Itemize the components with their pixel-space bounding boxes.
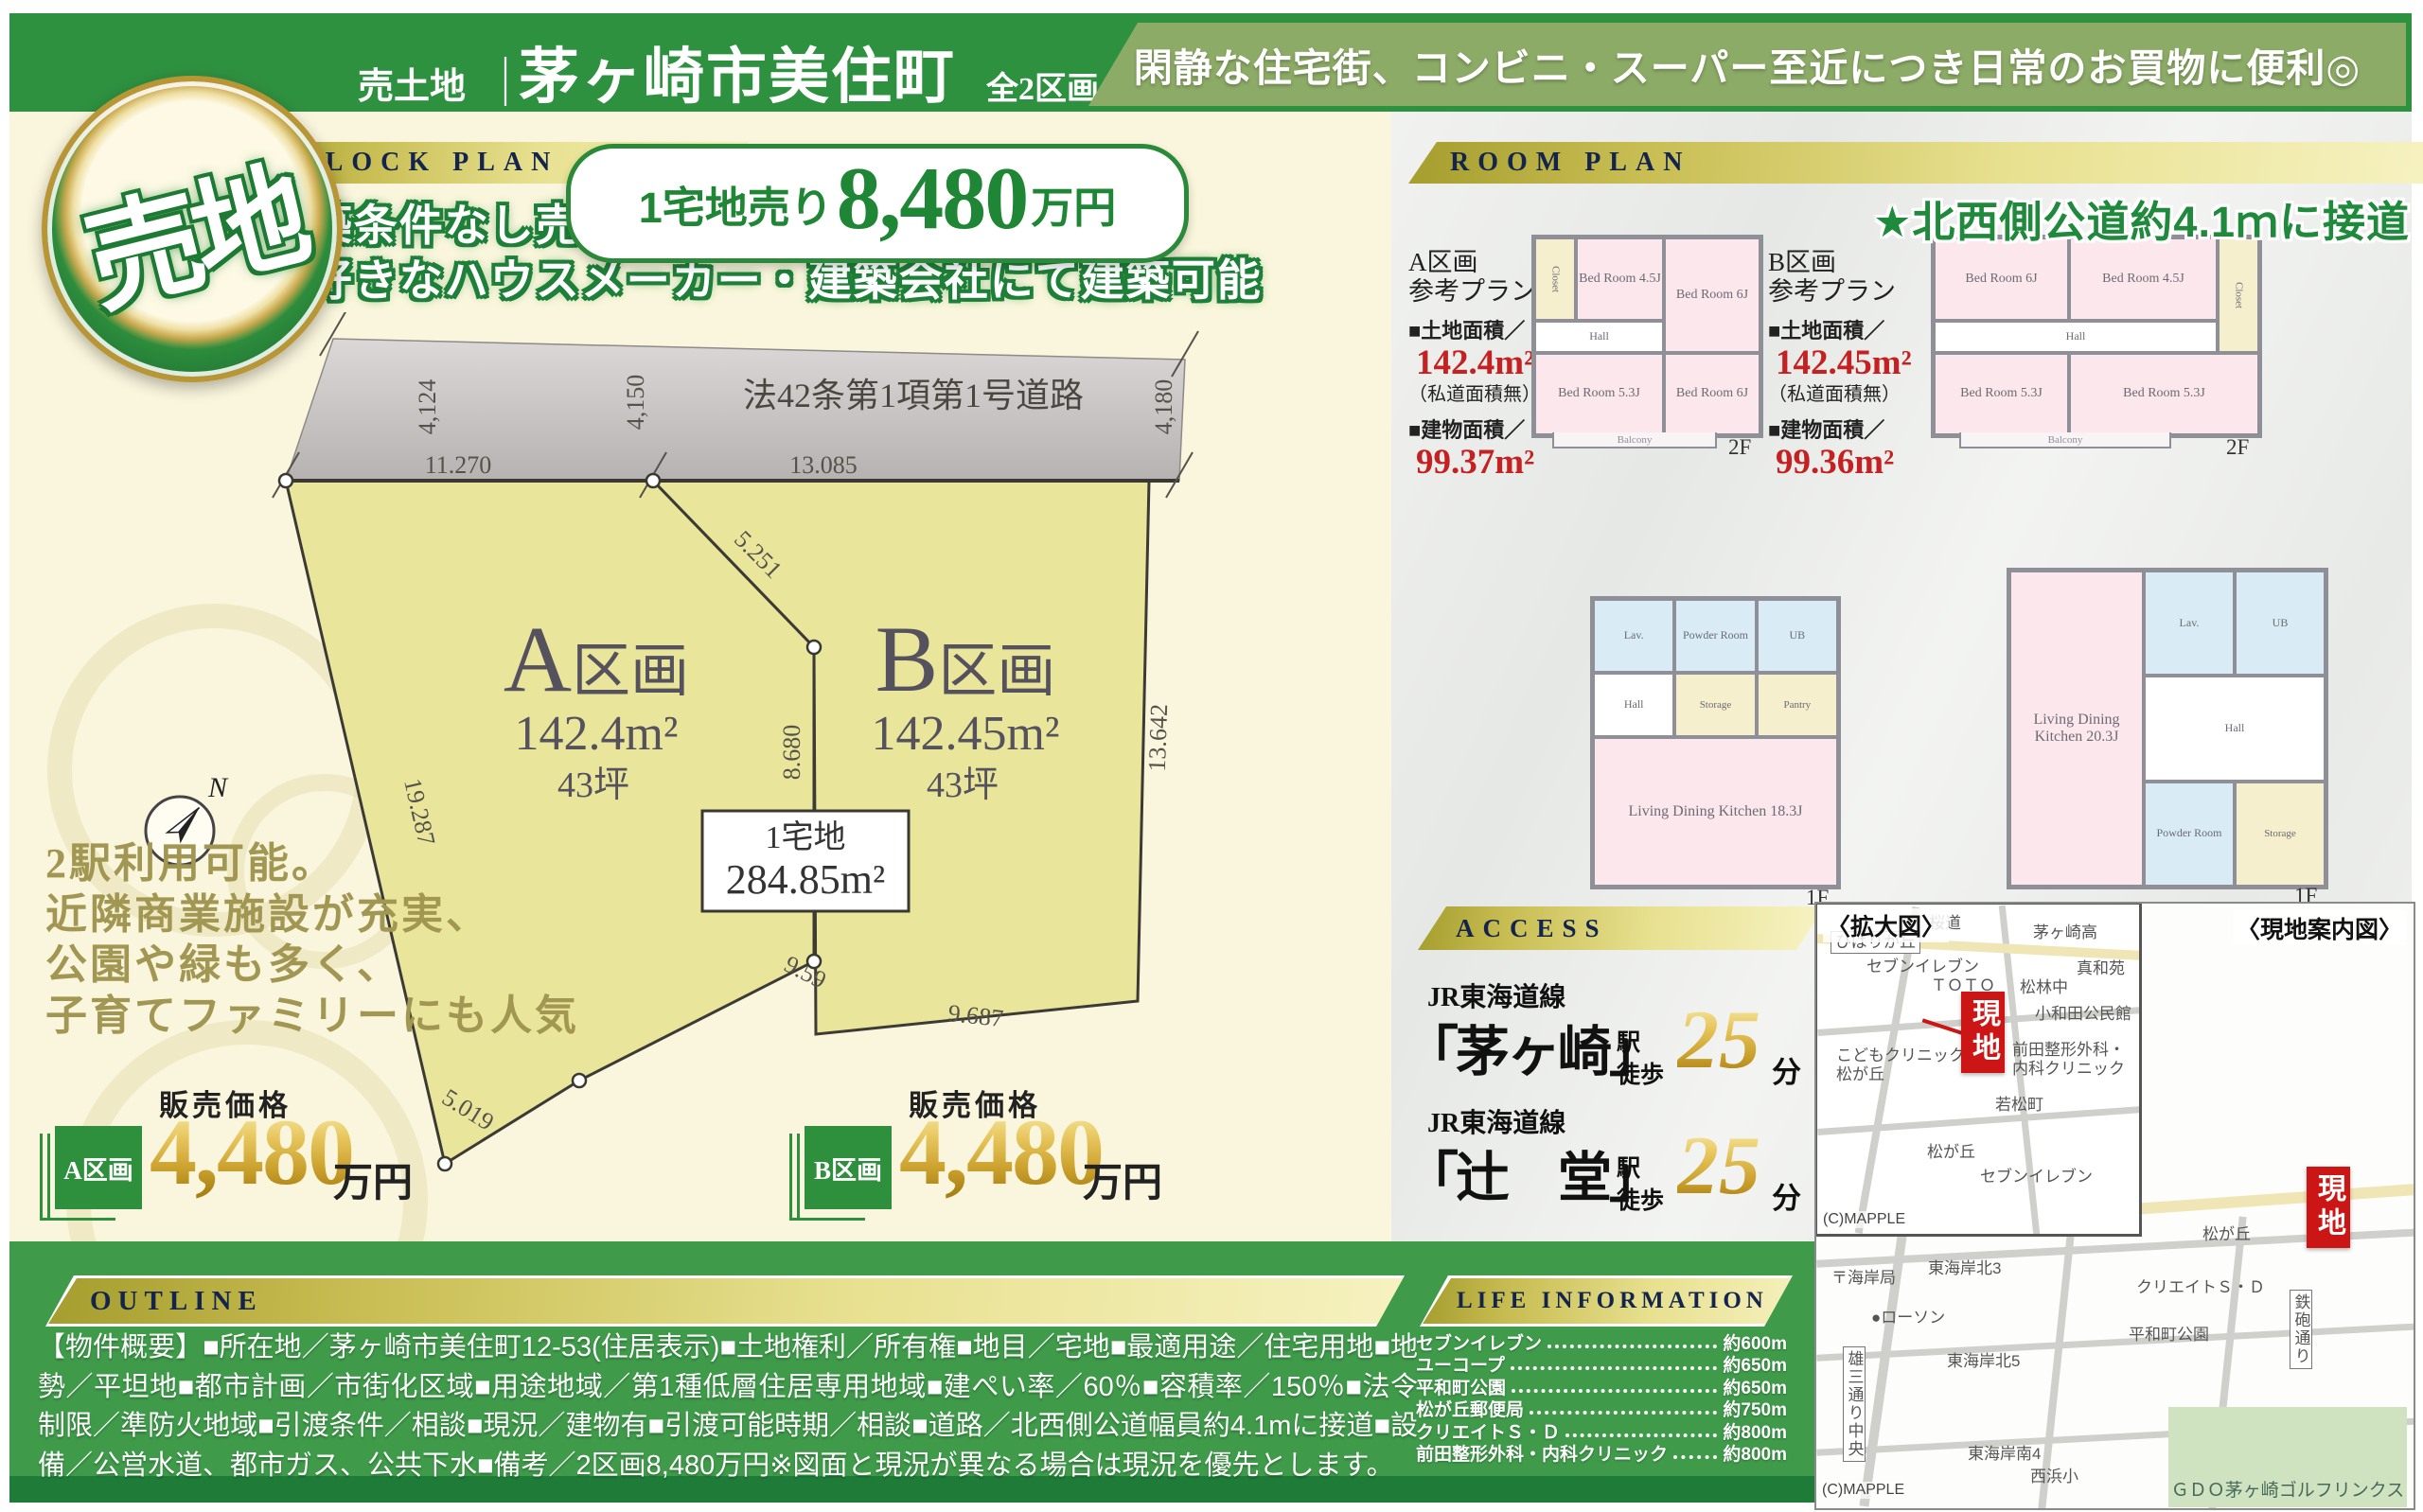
route-2-minutes-unit: 分 — [1772, 1174, 1801, 1217]
plan-b-2f-label: 2F — [2226, 435, 2249, 460]
outline-section-bar: OUTLINE — [45, 1275, 1405, 1327]
facility-name: 前田整形外科・内科クリニック — [1416, 1440, 1668, 1466]
dot-leader — [1565, 1433, 1717, 1437]
map-label: 東海岸北5 — [1947, 1352, 2020, 1371]
plan-a-building-label: ■建物面積／ — [1408, 413, 1550, 444]
plan-a-info: A区画 参考プラン ■土地面積／ 142.4m² （私道面積無） ■建物面積／ … — [1408, 248, 1550, 482]
room: Bed Room 5.3J — [2071, 355, 2257, 434]
price-unit: 万円 — [1031, 173, 1116, 235]
room: UB — [2237, 572, 2324, 674]
plan-a-land-note: （私道面積無） — [1408, 383, 1550, 406]
plan-b-land-note: （私道面積無） — [1768, 383, 1910, 406]
inset-site-marker: 現地 — [1961, 992, 2005, 1073]
route-1-minutes: 25 — [1677, 999, 1760, 1082]
guide-map-credit: (C)MAPPLE — [1822, 1482, 1904, 1499]
plan-b-info: B区画 参考プラン ■土地面積／ 142.45m² （私道面積無） ■建物面積／… — [1768, 248, 1910, 482]
plan-a-land-label: ■土地面積／ — [1408, 314, 1550, 344]
lot-b-area-label: 142.45m² — [871, 707, 1059, 761]
map-label: 前田整形外科・ 内科クリニック — [2012, 1041, 2125, 1078]
room: Closet — [2220, 239, 2257, 351]
room-plan-section-label: ROOM PLAN — [1408, 142, 2423, 184]
catch-copy-line: 公園や緑も多く、 — [45, 940, 579, 991]
plan-b-land-label: ■土地面積／ — [1768, 314, 1910, 344]
total-label: 1宅地 — [766, 819, 846, 855]
room: Lav. — [1595, 601, 1672, 671]
room: Lav. — [2146, 572, 2233, 674]
map-label: 雄三通り中央 — [1843, 1346, 1866, 1462]
catch-copy-line: 子育てファミリーにも人気 — [45, 991, 579, 1042]
map-label: 西浜小 — [2030, 1468, 2078, 1486]
header-banner: 閑静な住宅街、コンビニ・スーパー至近につき日常のお買物に便利◎ — [1088, 23, 2406, 106]
room: Powder Room — [2146, 783, 2233, 885]
badge-label: 売地 — [67, 122, 317, 337]
access-section-label: ACCESS — [1418, 906, 1825, 950]
route-1-station-suffix: 駅 — [1617, 1024, 1640, 1058]
lot-count: 全2区画 — [986, 62, 1099, 109]
map-label: セブンイレブン — [1980, 1168, 2093, 1187]
plan-a-1f-floorplan: Lav. Powder Room UB Hall Storage Pantry … — [1590, 596, 1841, 889]
map-label: セブンイレブン — [1866, 958, 1979, 976]
room: Bed Room 6J — [1936, 239, 2067, 319]
route-1-walk-label: 徒歩 — [1617, 1056, 1664, 1090]
map-label: 小和田公民館 — [2035, 1005, 2131, 1024]
map-label: 松が丘 — [2202, 1225, 2251, 1244]
plan-a-balcony: Balcony — [1552, 432, 1717, 448]
plan-a-subtitle: 参考プラン — [1408, 277, 1550, 307]
price-value: 8,480 — [837, 148, 1028, 250]
facility-distance: 約800m — [1723, 1440, 1787, 1466]
plan-b-name: B区画 — [1768, 248, 1910, 277]
property-category: 売土地 — [358, 57, 466, 109]
dim-divider: 8.680 — [778, 725, 805, 781]
road-name: 法42条第1項第1号道路 — [743, 377, 1084, 414]
map-label: 平和町公園 — [2129, 1326, 2209, 1345]
price-prefix: 1宅地売り — [639, 173, 833, 235]
lot-a-area-label: 142.4m² — [514, 707, 678, 761]
dim-front-b: 13.085 — [789, 451, 858, 479]
road-access-note: ★北西側公道約4.1ｍに接道 — [1873, 187, 2410, 249]
for-sale-badge: 売地 — [42, 76, 343, 382]
room: Hall — [1936, 323, 2216, 351]
room: Powder Room — [1676, 601, 1754, 671]
outline-section-label: OUTLINE — [48, 1278, 1443, 1324]
map-label: 茅ヶ崎高 — [2033, 923, 2097, 942]
room: Pantry — [1759, 675, 1836, 735]
plan-a-2f-floorplan: Closet Bed Room 4.5J Bed Room 6J Hall Be… — [1531, 235, 1763, 438]
route-2-minutes: 25 — [1677, 1125, 1760, 1208]
guide-map-title: 〈現地案内図〉 — [2233, 911, 2406, 945]
header-banner-text: 閑静な住宅街、コンビニ・スーパー至近につき日常のお買物に便利◎ — [1134, 36, 2361, 93]
map-label: 真和苑 — [2077, 959, 2125, 978]
plan-a-name: A区画 — [1408, 248, 1550, 277]
route-2-walk-label: 徒歩 — [1617, 1182, 1664, 1216]
route-1-minutes-unit: 分 — [1772, 1048, 1801, 1091]
room: Closet — [1536, 239, 1574, 319]
room: Living Dining Kitchen 18.3J — [1595, 739, 1836, 885]
flyer-page: 売地 売土地 ｜ 茅ヶ崎市美住町 全2区画 閑静な住宅街、コンビニ・スーパー至近… — [0, 0, 2423, 1512]
room: Bed Room 6J — [1666, 239, 1759, 351]
plan-b-2f-floorplan: Bed Room 6J Bed Room 4.5J Closet Hall Be… — [1931, 235, 2262, 438]
plan-b-balcony: Balcony — [1959, 432, 2171, 448]
room: UB — [1759, 601, 1836, 671]
catch-copy: 2駅利用可能。近隣商業施設が充実、公園や緑も多く、子育てファミリーにも人気 — [45, 838, 579, 1042]
life-information-list: セブンイレブン 約600m ユーコープ 約650m 平和町公園 約650m 松が… — [1416, 1332, 1787, 1466]
room: Hall — [1595, 675, 1672, 735]
map-label: 東海岸南4 — [1968, 1445, 2041, 1464]
lot-a-tsubo: 43坪 — [557, 765, 629, 805]
room: Bed Room 5.3J — [1936, 355, 2067, 434]
dim-b-right: 13.642 — [1143, 703, 1173, 771]
lot-a-price-tag: A区画 — [55, 1126, 142, 1209]
total-area: 284.85m² — [726, 856, 885, 903]
room: Living Dining Kitchen 20.3J — [2011, 572, 2142, 885]
room: Storage — [2237, 783, 2324, 885]
plan-b-building-area: 99.36m² — [1776, 444, 1910, 483]
dim-road-right: 4,180 — [1150, 379, 1177, 435]
dot-leader — [1512, 1389, 1717, 1393]
site-plan-drawing: 4,124 4,150 4,180 11.270 13.085 5.251 8.… — [133, 312, 1230, 1192]
catch-copy-line: 近隣商業施設が充実、 — [45, 889, 579, 941]
map-label: ●ローソン — [1871, 1309, 1945, 1327]
life-information-section-label: LIFE INFORMATION — [1423, 1278, 1824, 1324]
dim-road-mid: 4,150 — [622, 375, 649, 431]
compass-north-label: N — [207, 772, 229, 803]
property-outline-text: 【物件概要】■所在地／茅ヶ崎市美住町12-53(住居表示)■土地権利／所有権■地… — [38, 1328, 1418, 1486]
map-label: 松が丘 — [1927, 1143, 1975, 1162]
dim-road-left: 4,124 — [414, 379, 441, 435]
room: Hall — [2146, 677, 2324, 779]
plan-a-2f-label: 2F — [1728, 435, 1751, 460]
map-label: クリエイトＳ・Ｄ — [2136, 1278, 2265, 1297]
inset-map-title: 〈拡大図〉 — [1823, 908, 1949, 942]
map-label: 〒海岸局 — [1831, 1269, 1896, 1288]
golf-course-park: ＧＤＯ茅ヶ崎ゴルフリンクス — [2168, 1407, 2407, 1507]
inset-map-credit: (C)MAPPLE — [1823, 1211, 1905, 1228]
dim-b-bottom: 9.687 — [946, 999, 1004, 1032]
dot-leader — [1530, 1411, 1717, 1415]
life-information-section-bar: LIFE INFORMATION — [1420, 1275, 1793, 1327]
map-label: 鉄砲通り — [2290, 1290, 2312, 1369]
guide-site-marker: 現地 — [2307, 1167, 2350, 1248]
guide-map: ＧＤＯ茅ヶ崎ゴルフリンクス 〈現地案内図〉 現地 (C)MAPPLE 茅ヶ崎駅〒… — [1814, 902, 2415, 1510]
dot-leader — [1673, 1455, 1717, 1459]
dim-front-a: 11.270 — [425, 451, 492, 479]
dot-leader — [1511, 1366, 1718, 1370]
map-label: 若松町 — [1995, 1096, 2043, 1115]
plan-b-building-label: ■建物面積／ — [1768, 413, 1910, 444]
room: Bed Room 6J — [1666, 355, 1759, 434]
page-title: 茅ヶ崎市美住町 — [519, 28, 956, 115]
total-price-bubble: 1宅地売り 8,480 万円 — [566, 144, 1189, 263]
lot-b-tsubo: 43坪 — [927, 765, 999, 805]
dot-leader — [1548, 1345, 1717, 1348]
plan-b-land-area: 142.45m² — [1776, 344, 1910, 383]
catch-copy-line: 2駅利用可能。 — [45, 838, 579, 889]
total-area-box: 1宅地 284.85m² — [702, 811, 909, 911]
room: Storage — [1676, 675, 1754, 735]
map-label: 松林中 — [2020, 978, 2068, 997]
plan-a-land-area: 142.4m² — [1416, 344, 1550, 383]
room: Hall — [1536, 323, 1662, 351]
life-information-item: 前田整形外科・内科クリニック 約800m — [1416, 1444, 1787, 1467]
inset-map: 〈拡大図〉 現地 (C)MAPPLE ひばりが丘桜道セブンイレブン茅ヶ崎高真和苑… — [1814, 902, 2142, 1237]
map-label: 東海岸北3 — [1928, 1259, 2001, 1278]
map-label: こどもクリニック 松が丘 — [1836, 1046, 1965, 1083]
plan-a-building-area: 99.37m² — [1416, 444, 1550, 483]
plan-b-subtitle: 参考プラン — [1768, 277, 1910, 307]
room: Bed Room 5.3J — [1536, 355, 1662, 434]
route-2-station-suffix: 駅 — [1617, 1150, 1640, 1184]
room: Bed Room 4.5J — [1578, 239, 1662, 319]
plan-b-1f-floorplan: Living Dining Kitchen 20.3J Lav. UB Hall… — [2007, 568, 2328, 889]
room: Bed Room 4.5J — [2071, 239, 2216, 319]
